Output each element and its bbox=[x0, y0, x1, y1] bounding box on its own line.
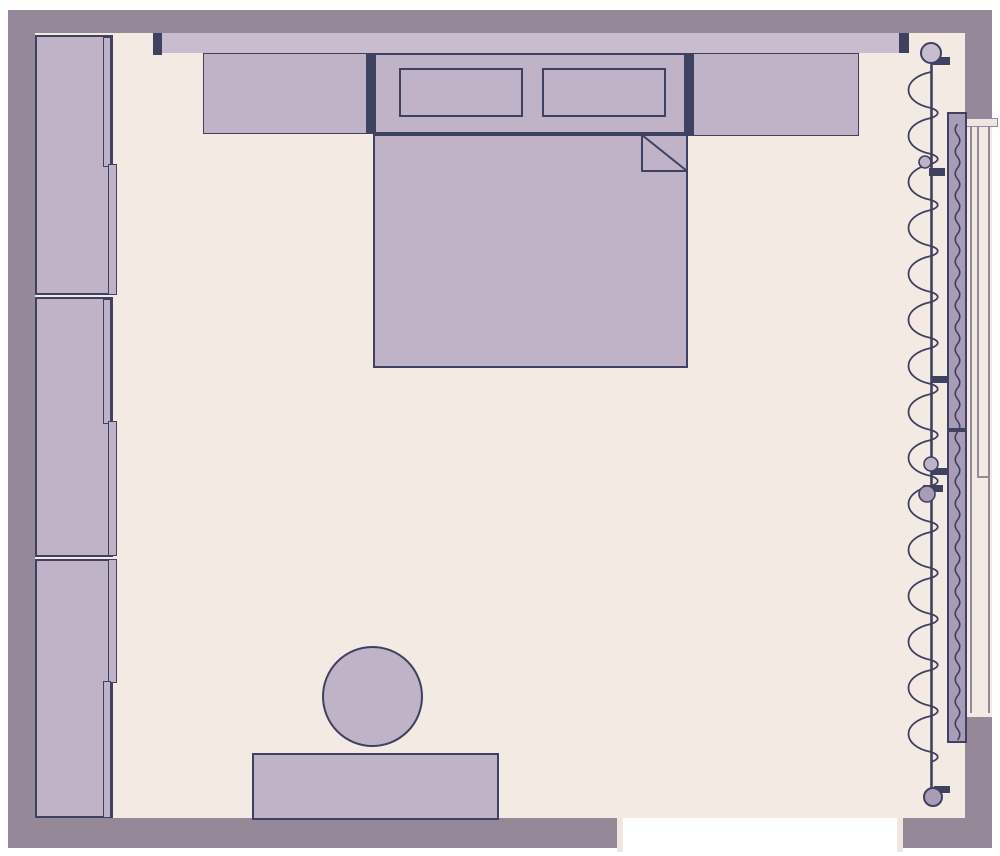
window-glass-line bbox=[970, 127, 972, 713]
wardrobe-module[interactable] bbox=[35, 35, 113, 295]
nightstand-right[interactable] bbox=[692, 53, 859, 136]
wardrobe-door-leaf[interactable] bbox=[103, 681, 111, 818]
wardrobe-door-leaf[interactable] bbox=[108, 164, 117, 295]
window-sill bbox=[961, 118, 998, 127]
opening-jamb bbox=[897, 818, 903, 852]
wardrobe-door-leaf[interactable] bbox=[108, 421, 117, 556]
pillow[interactable] bbox=[542, 68, 666, 117]
pillow[interactable] bbox=[399, 68, 523, 117]
desk[interactable] bbox=[252, 753, 499, 820]
bed-blanket[interactable] bbox=[373, 134, 688, 368]
window-glass-line bbox=[988, 127, 990, 713]
pelmet-end-cap bbox=[153, 33, 162, 55]
nightstand-left[interactable] bbox=[203, 53, 375, 134]
bed-side-bar bbox=[684, 53, 694, 136]
wardrobe-module[interactable] bbox=[35, 297, 113, 557]
opening-jamb bbox=[617, 818, 623, 852]
curtain-pelmet[interactable] bbox=[155, 33, 901, 53]
pelmet-end-cap bbox=[899, 33, 909, 53]
wardrobe-door-leaf[interactable] bbox=[108, 559, 117, 683]
wardrobe-door-leaf[interactable] bbox=[103, 299, 111, 424]
wall-opening bbox=[623, 818, 897, 856]
wardrobe-door-leaf[interactable] bbox=[103, 37, 111, 167]
window-glass-line bbox=[977, 127, 979, 478]
bed-side-bar bbox=[366, 53, 376, 134]
stool[interactable] bbox=[322, 646, 423, 747]
floor-plan-canvas bbox=[0, 0, 1000, 856]
wardrobe-module[interactable] bbox=[35, 559, 113, 818]
